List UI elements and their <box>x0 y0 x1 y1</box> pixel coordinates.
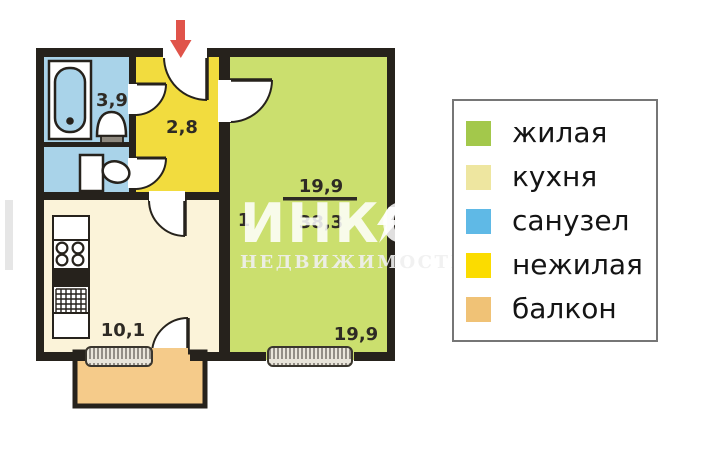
color-swatch-living <box>466 121 491 146</box>
area-fraction-line <box>283 197 357 201</box>
rooms-count-label: 1 <box>238 210 251 231</box>
living-room-area-label: 19,9 <box>334 324 378 345</box>
wall-top-right <box>207 48 395 57</box>
hallway-area-label: 2,8 <box>166 117 198 138</box>
legend-label-kitchen: кухня <box>512 163 597 191</box>
oven <box>54 268 88 287</box>
legend-item-living: жилая <box>454 111 656 155</box>
wall-top-left <box>36 48 163 57</box>
bathroom-area-label: 3,9 <box>96 90 128 111</box>
living-area-label: 19,9 <box>299 176 343 197</box>
wall-kitchen-2 <box>185 192 219 200</box>
legend-item-nonliving: нежилая <box>454 243 656 287</box>
window-living <box>268 347 352 366</box>
wall-kitchen-1 <box>36 192 149 200</box>
wall-right <box>387 48 395 360</box>
opening-kitchen <box>149 191 185 201</box>
opening-balcony <box>152 348 188 358</box>
color-swatch-bathroom <box>466 209 491 234</box>
window-kitchen <box>86 347 152 366</box>
opening-living <box>218 80 231 122</box>
color-swatch-kitchen <box>466 165 491 190</box>
watermark-fragment <box>5 200 13 270</box>
wall-bath-1 <box>129 53 136 84</box>
legend-item-balcony: балкон <box>454 287 656 331</box>
wall-left <box>36 48 44 360</box>
wall-living-top <box>219 48 230 80</box>
wall-living-bottom <box>219 122 230 360</box>
page: { "plan": { "rooms_count": "1", "living_… <box>0 0 701 460</box>
wall-bath-2 <box>129 114 136 158</box>
kitchen-sink-icon <box>56 289 86 312</box>
wall-bottom-3 <box>354 352 395 361</box>
wall-bottom-1 <box>36 352 86 361</box>
kitchen-area-label: 10,1 <box>101 320 145 341</box>
color-swatch-nonliving <box>466 253 491 278</box>
legend-label-balcony: балкон <box>512 295 617 323</box>
total-area-label: 38,3 <box>299 212 343 233</box>
legend-label-nonliving: нежилая <box>512 251 643 279</box>
color-swatch-balcony <box>466 297 491 322</box>
opening-bathroom <box>128 84 137 114</box>
sink-icon <box>97 112 126 143</box>
legend-item-bathroom: санузел <box>454 199 656 243</box>
legend: жилая кухня санузел нежилая балкон <box>452 99 658 342</box>
legend-label-living: жилая <box>512 119 607 147</box>
legend-item-kitchen: кухня <box>454 155 656 199</box>
bathtub-icon <box>49 61 91 139</box>
kitchen-unit <box>53 216 89 338</box>
legend-label-bathroom: санузел <box>512 207 629 235</box>
